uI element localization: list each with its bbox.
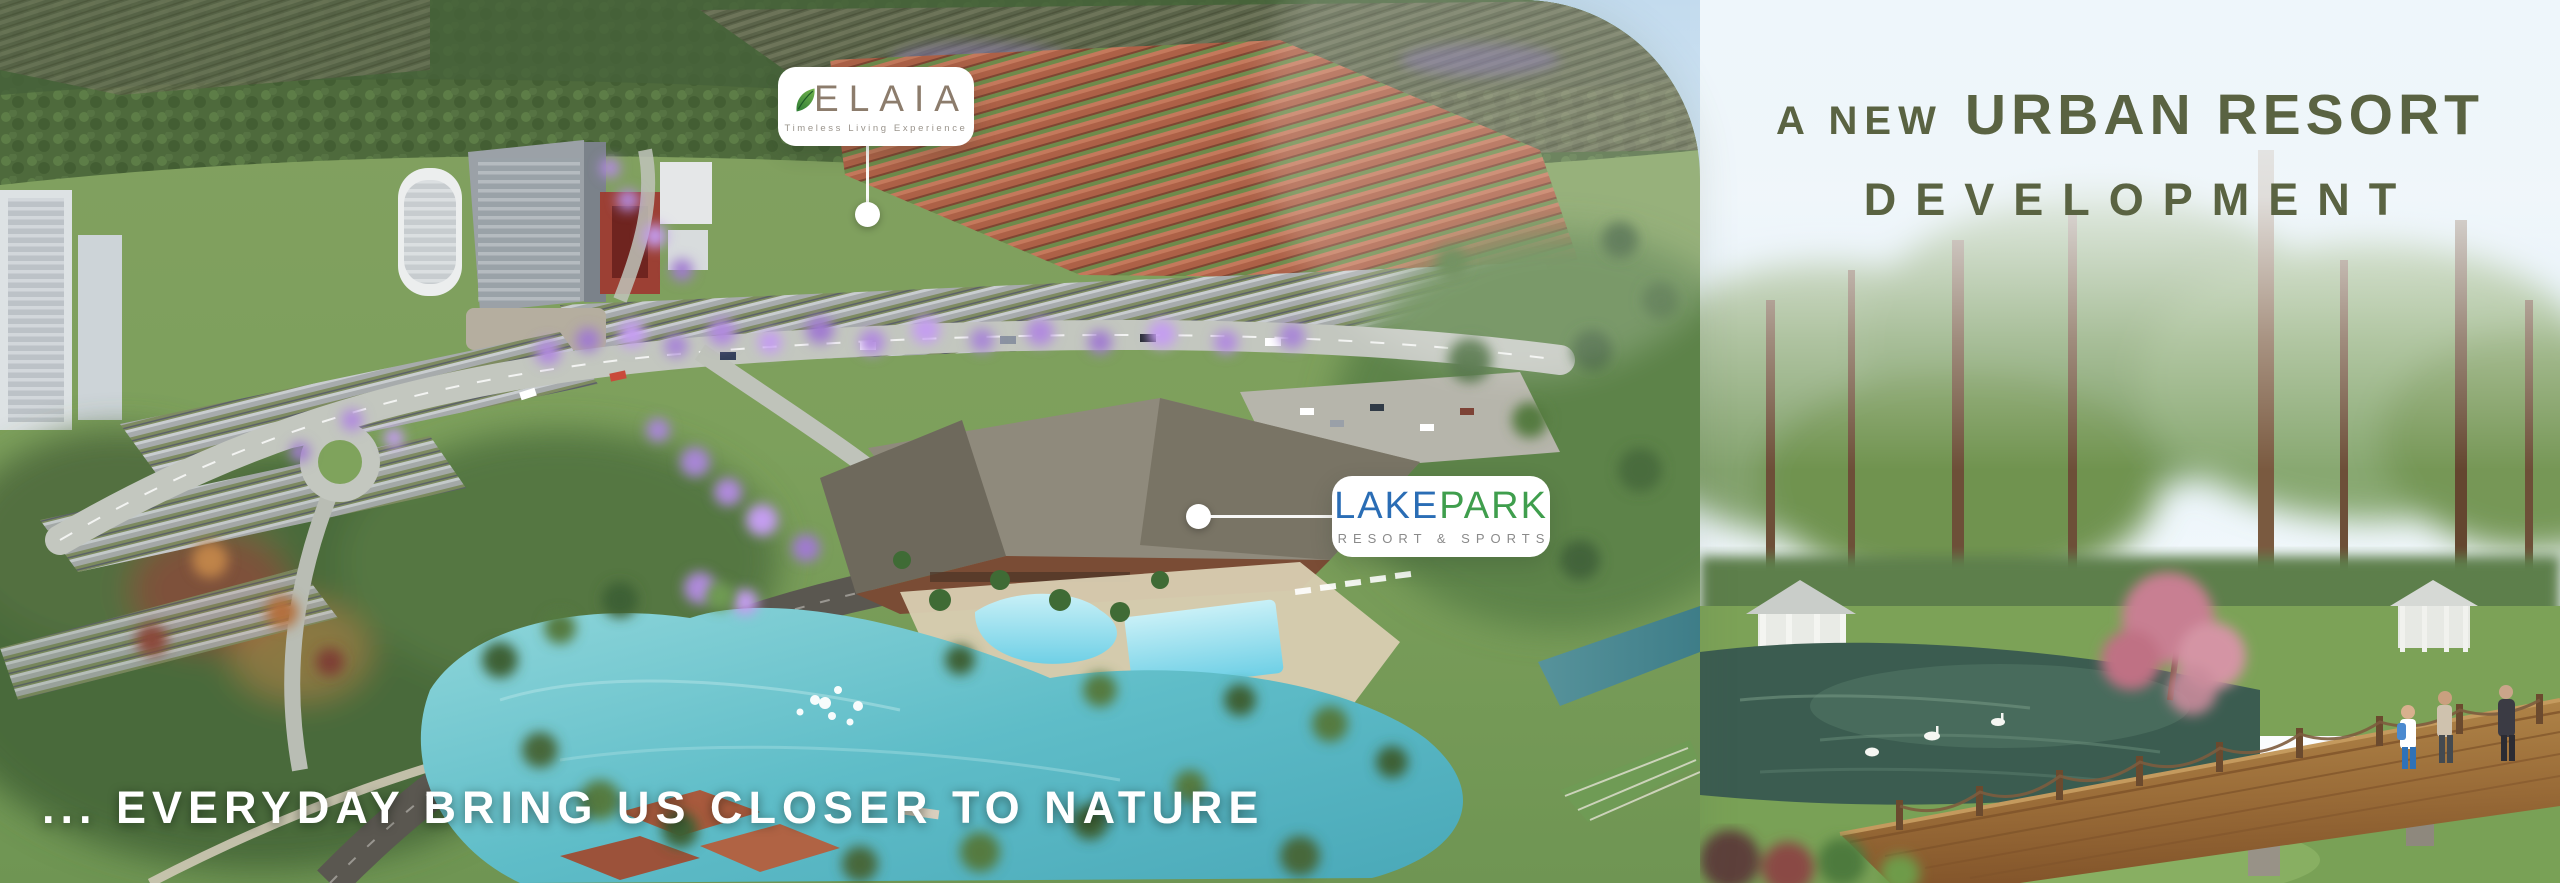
leaf-icon <box>791 85 822 118</box>
headline-line1: A NEW URBAN RESORT <box>1700 82 2560 148</box>
elaia-logo: ELAIA <box>793 80 959 117</box>
bottom-tagline: ... EVERYDAY BRING US CLOSER TO NATURE <box>42 782 1264 834</box>
headline-emphasis: URBAN RESORT <box>1965 82 2484 148</box>
lakepark-callout-dot <box>1186 504 1211 529</box>
lakepark-subtitle-text: RESORT & SPORTS <box>1338 531 1551 546</box>
elaia-tagline-text: Timeless Living Experience <box>785 123 968 134</box>
resort-marketing-banner: ELAIA Timeless Living Experience LAKEPAR… <box>0 0 2560 883</box>
elaia-callout-dot <box>855 202 880 227</box>
lakepark-brand-part2: PARK <box>1439 485 1548 527</box>
lakepark-logo: LAKEPARK <box>1334 487 1548 525</box>
lakepark-brand-part1: LAKE <box>1334 485 1439 527</box>
elaia-logo-badge: ELAIA Timeless Living Experience <box>778 67 974 146</box>
lakepark-logo-badge: LAKEPARK RESORT & SPORTS <box>1332 476 1550 557</box>
elaia-callout-line <box>866 146 869 203</box>
headline-line2: DEVELOPMENT <box>1719 174 2560 226</box>
headline-prefix: A NEW <box>1776 99 1943 144</box>
elaia-brand-text: ELAIA <box>814 80 969 117</box>
headline: A NEW URBAN RESORT DEVELOPMENT <box>1700 82 2560 226</box>
lakepark-callout-line <box>1209 515 1332 518</box>
fog-fade <box>1700 0 2560 470</box>
